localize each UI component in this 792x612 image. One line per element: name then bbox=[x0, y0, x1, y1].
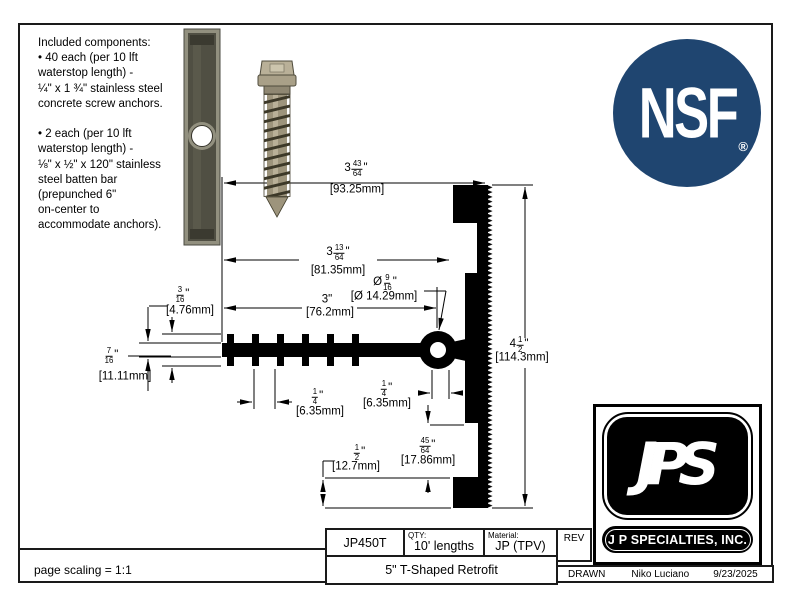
qty-cell: QTY: 10' lengths bbox=[403, 530, 483, 555]
dim-mid-mm: [81.35mm] bbox=[311, 265, 365, 277]
nsf-logo: NSF ® bbox=[613, 39, 761, 187]
nsf-registered-mark: ® bbox=[738, 139, 748, 154]
rev-cell: REV bbox=[556, 528, 592, 562]
dim-mid-value: 31364" bbox=[326, 244, 349, 262]
profile-anchor-hole bbox=[430, 342, 446, 358]
jps-company-pill: J P SPECIALTIES, INC. bbox=[602, 526, 753, 553]
material-cell: Material: JP (TPV) bbox=[483, 530, 556, 555]
dim-716-mm: [11.11mm] bbox=[99, 371, 152, 383]
dim-half-mm: [12.7mm] bbox=[332, 461, 380, 473]
drawing-sheet: page scaling = 1:1 Included components: … bbox=[0, 0, 792, 612]
dim-three-value: 3" bbox=[322, 294, 336, 306]
batten-bar-image bbox=[184, 29, 220, 245]
title-block: JP450T QTY: 10' lengths Material: JP (TP… bbox=[325, 528, 558, 585]
dim-rib-mm: [6.35mm] bbox=[296, 406, 344, 418]
nsf-logo-text: NSF bbox=[638, 72, 736, 155]
drawn-row: DRAWN Niko Luciano 9/23/2025 bbox=[556, 565, 774, 583]
part-number: JP450T bbox=[343, 536, 386, 550]
dim-height-mm: [114.3mm] bbox=[495, 352, 548, 364]
screw-anchor-image bbox=[258, 61, 296, 217]
drawn-by: Niko Luciano bbox=[631, 569, 689, 580]
part-number-cell: JP450T bbox=[327, 530, 403, 555]
jps-logo-box: JPS J P SPECIALTIES, INC. bbox=[593, 404, 762, 565]
dim-rib-value: 14" bbox=[311, 388, 323, 406]
dim-4564-value: 4564" bbox=[419, 437, 436, 455]
rev-label: REV bbox=[564, 533, 585, 544]
dim-neck-value: 14" bbox=[380, 380, 392, 398]
dim-top-mm: [93.25mm] bbox=[330, 184, 384, 196]
material-label: Material: bbox=[488, 531, 519, 540]
product-title-cell: 5" T-Shaped Retrofit bbox=[327, 557, 556, 583]
profile-neck bbox=[452, 339, 466, 361]
title-block-row1: JP450T QTY: 10' lengths Material: JP (TP… bbox=[327, 530, 556, 557]
drawn-label: DRAWN bbox=[568, 569, 605, 580]
batten-bar-hole bbox=[192, 126, 213, 147]
dim-4564-mm: [17.86mm] bbox=[401, 455, 455, 467]
material-value: JP (TPV) bbox=[495, 539, 545, 553]
qty-label: QTY: bbox=[408, 531, 426, 540]
dim-716-value: 716" bbox=[104, 347, 119, 365]
dim-top-value: 34364" bbox=[344, 160, 367, 178]
dim-diameter-mm: [Ø 14.29mm] bbox=[351, 291, 417, 303]
dim-316-mm: [4.76mm] bbox=[166, 305, 214, 317]
jps-company-name: J P SPECIALTIES, INC. bbox=[608, 533, 747, 547]
dim-316-value: 316" bbox=[175, 286, 190, 304]
jps-logo: JPS bbox=[602, 412, 753, 520]
profile-serrated-edge bbox=[487, 185, 493, 508]
qty-value: 10' lengths bbox=[414, 539, 474, 553]
dim-three-mm: [76.2mm] bbox=[306, 307, 354, 319]
jps-logo-script: JPS bbox=[636, 430, 719, 498]
dim-neck-mm: [6.35mm] bbox=[363, 398, 411, 410]
drawn-date: 9/23/2025 bbox=[713, 569, 758, 580]
jps-logo-emblem: JPS bbox=[607, 417, 748, 515]
product-title: 5" T-Shaped Retrofit bbox=[385, 563, 498, 577]
